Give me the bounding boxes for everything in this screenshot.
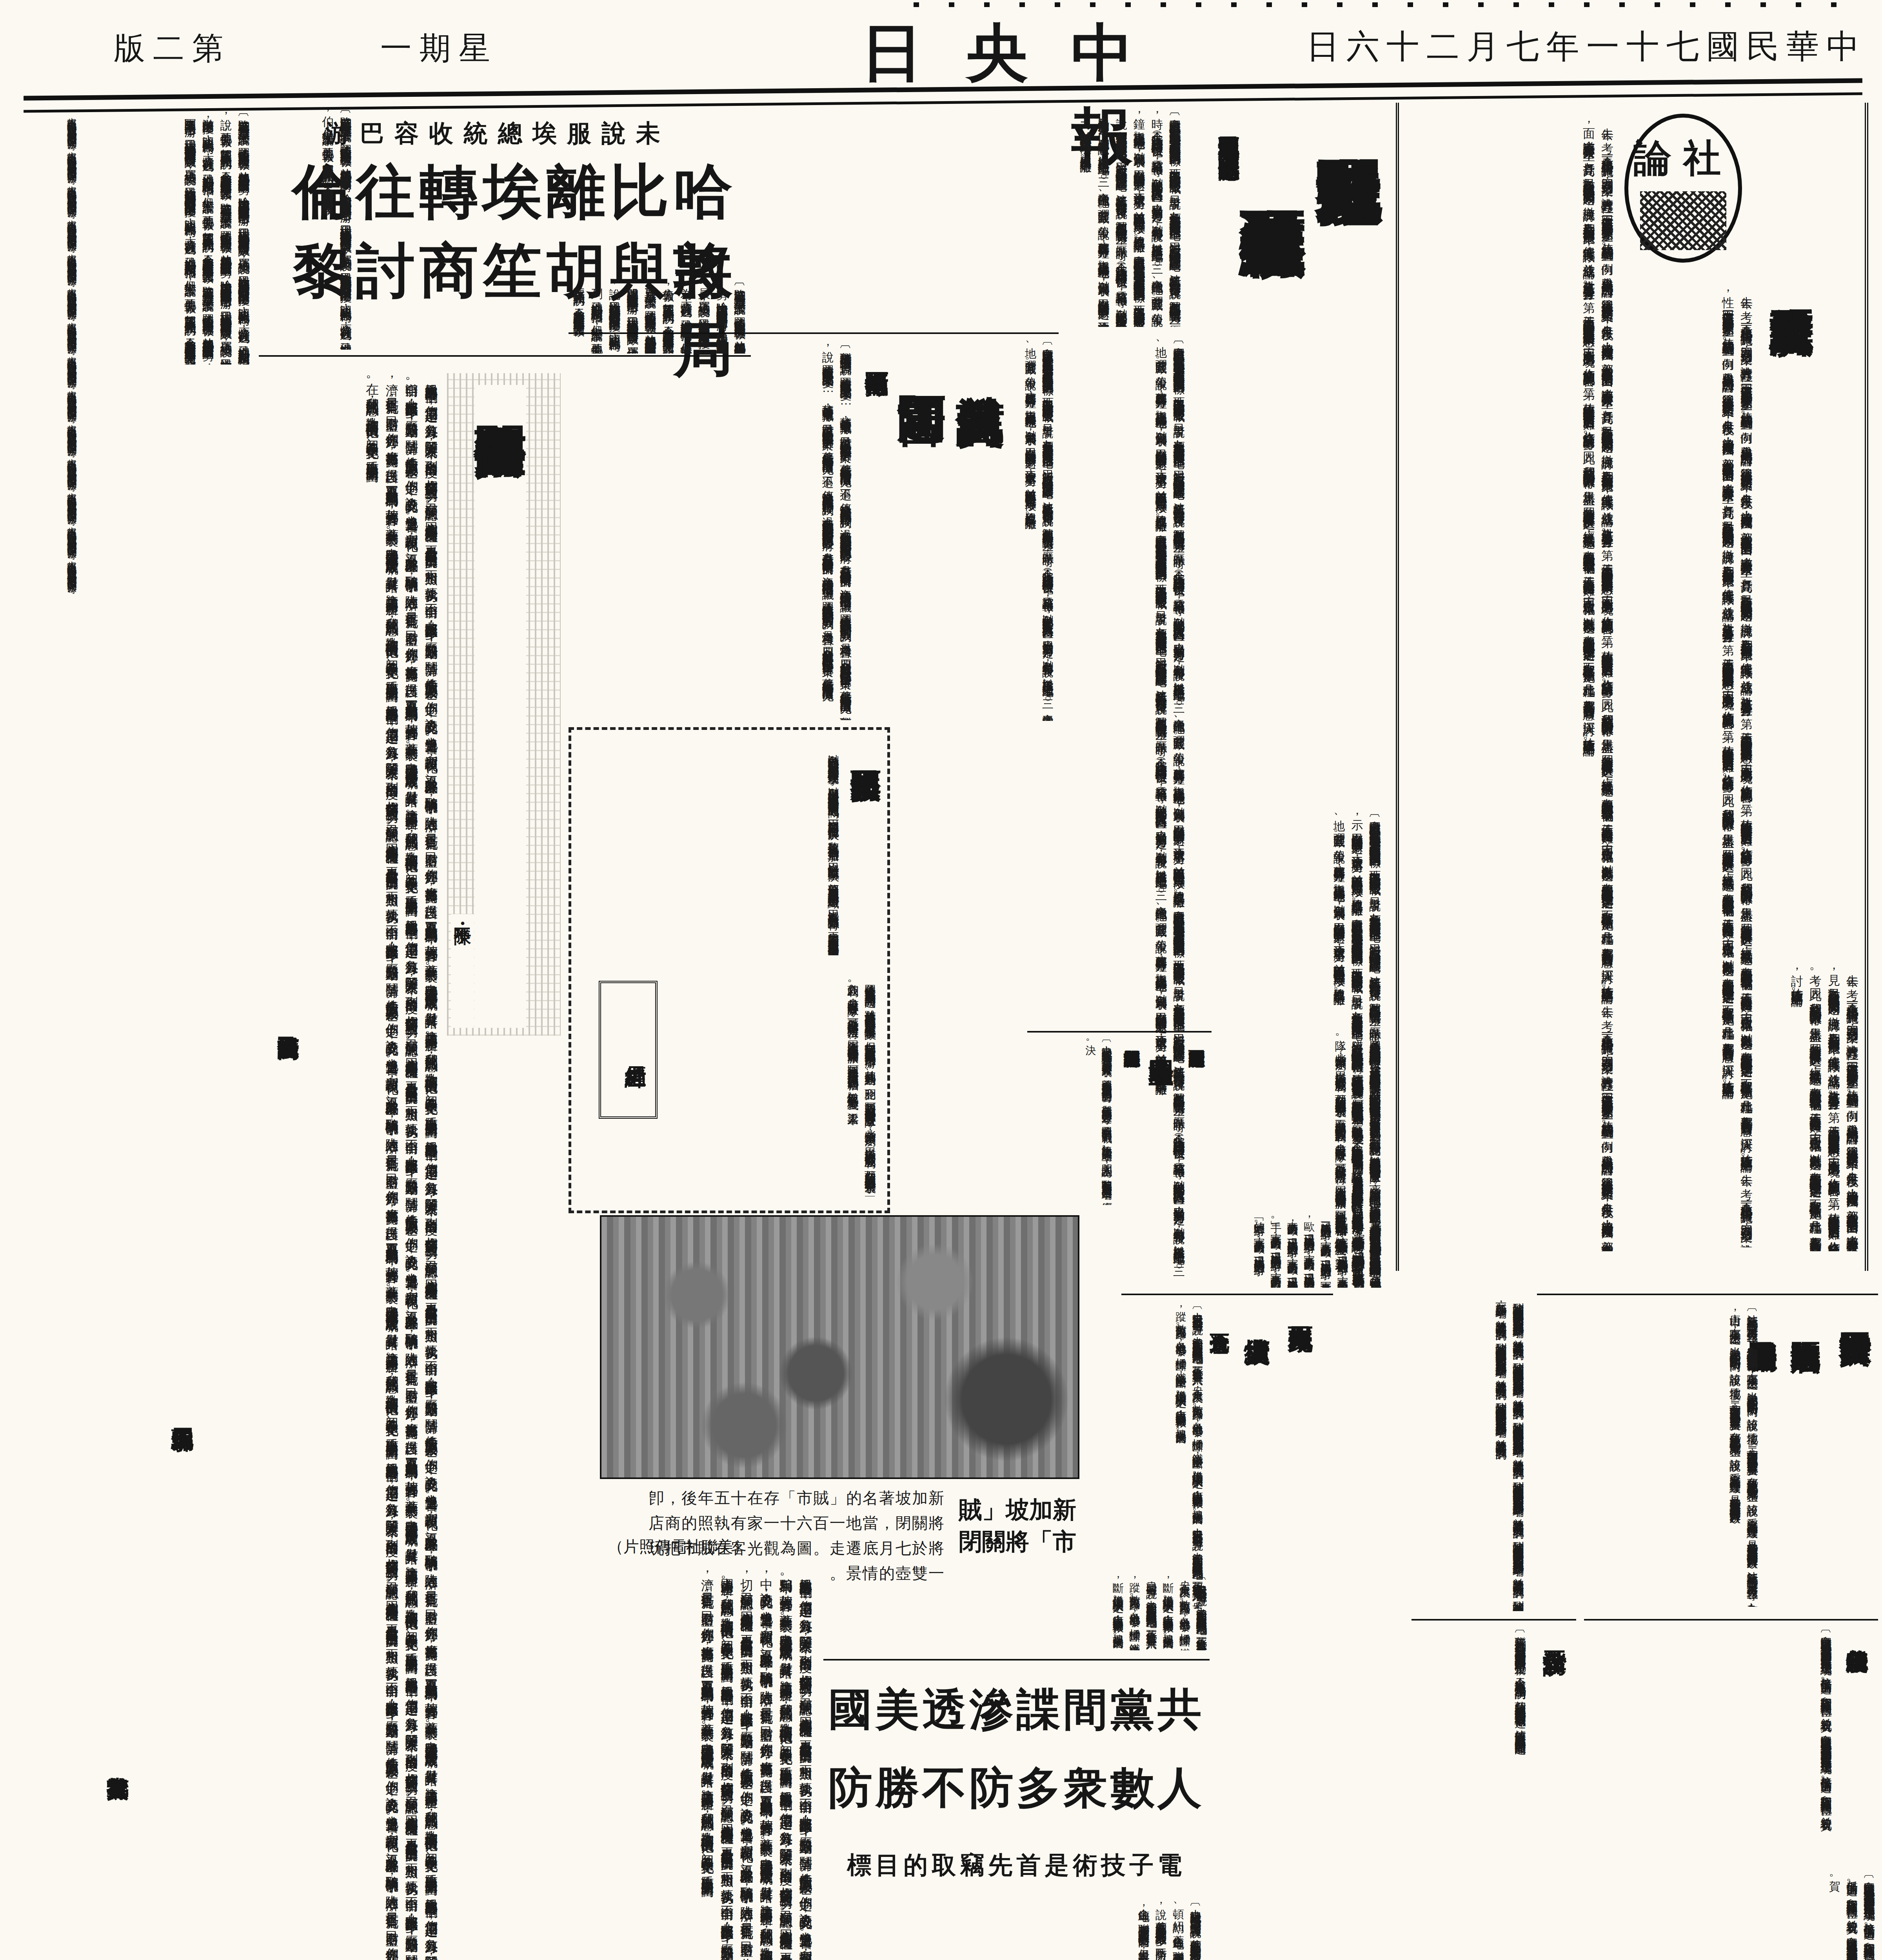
worldbox-body-bottom: 美國特使哈比目前正在埃及商討巴游問題，雖然埃及曾表示可以收容巴解「法塔」組織主要… [656, 975, 879, 1196]
europe-steel-columns: 該刊追述有關歐洲鋼鐵進口及歐洲公司參與建造西伯利亞瓦斯管線的爭端，並說美國的不滿… [1411, 1294, 1527, 1611]
beirut-headline-1: 以摧毀敍飛彈基地 [1315, 107, 1384, 805]
tangshan-headline-2: 唐山地震事隔六年 [1790, 1319, 1821, 1609]
singh-headline: 辛哈就任印度總統 [1842, 1632, 1872, 1852]
top-middle-wire-columns: 〔合衆國際社貝魯特二十五日電〕以色列噴射機二十五日連續第二天轟炸西貝魯特巴勒斯坦… [765, 109, 1184, 327]
news-photo [600, 1215, 1079, 1479]
left-top-wire-columns: 〔路透社開羅二十五日電〕埃及外交部人士說，美國特使哈比今天自開羅飛往倫敦，他將與… [84, 110, 253, 365]
saudi-body: 〔美聯社大馬士革廿五日電〕沙烏地阿拉伯王儲兼副總理及國民軍總司令阿布都拉親王，今… [1415, 1626, 1529, 1858]
afghan-headline-2: 阿富汗問題 [896, 358, 947, 632]
editorial-body-1: 去年 考。不意此一構想尚未付諸實施，卽因受到過分渲染，誇大其對立性，因而使若干原… [1409, 118, 1617, 1251]
open-letter-subhead-1: 提高警覺保護自己 [271, 1019, 307, 1247]
article-italy-pipeline: 強調瓦斯管合同須遵守 義國表明立場 推認為應會談解決問題 〔中央社記者鍾行憲羅馬… [1027, 1031, 1212, 1209]
masthead-registration-ticks [914, 2, 1862, 7]
world-affairs-box: 敍盼更換巴解頭目 以色列噴射機目前又開始對貝魯特的巴游目標作連續性攻擊，以色列與… [569, 727, 890, 1213]
photo-below-columns: 〔中央社東京二十五日共同電〕警方說，由於前天和昨天豪雨連續襲擊長崎縣和九州其他地… [823, 1574, 1210, 1650]
editorial-seal-pattern [1640, 191, 1726, 250]
editorial-body-2: 去年 考。不意此一構想尚未付諸實施，卽因受到過分渲染，誇大其對立性，因而使若干原… [1626, 287, 1756, 1247]
article-us-ussr-afghanistan: 美俄曾商討 阿富汗問題 俄仍不肯自阿撤軍 〔合衆國際社貝魯特二十五日電〕以色列噴… [569, 332, 1059, 726]
beirut-headline-2: 並繼續猛炸西貝魯特 [1239, 160, 1308, 811]
editorial-body-3: 去年 考。不意此一構想尚未付諸實施，卽因受到過分渲染，誇大其對立性，因而使若干原… [1764, 965, 1862, 1251]
editorial-title: 集思廣益研討經濟政策 [1768, 275, 1816, 942]
spy-headline-1: 共黨間諜滲透美國 [823, 1680, 1210, 1739]
tangshan-headline-1: 匪幹貪污侵吞救濟金 [1838, 1307, 1872, 1613]
saudi-headline: 沙王儲訪敍 [1539, 1632, 1570, 1852]
italy-kicker: 強調瓦斯管合同須遵守 [1186, 1037, 1208, 1206]
spy-headline-2: 人數衆多防不勝防 [823, 1759, 1210, 1818]
afghan-side-columns: 〔合衆國際社貝魯特二十五日電〕以色列噴射機二十五日連續第二天轟炸西貝魯特巴勒斯坦… [1008, 339, 1057, 721]
habib-body-left: 〔路透社開羅二十五日電〕埃及外交部人士說，美國特使哈比今天自開羅飛往倫敦，他將與… [261, 107, 355, 350]
open-letter-title: 致中共海外留學生的公開信 [474, 385, 526, 1028]
editorial-seal-label: 社論 [1628, 133, 1738, 184]
kyushu-headline-2: 災情繼續擴大 [1240, 1319, 1274, 1609]
open-letter-subhead-3: 莫把青春葬送共黨 [100, 1760, 136, 1960]
masthead-page-number: 第二版 [94, 27, 231, 70]
italy-subhead: 推認為應會談解決問題 [1121, 1037, 1143, 1206]
afghan-headline-1: 美俄曾商討 [955, 358, 1006, 632]
beirut-subheads: 以軍與巴解爆發激烈地面戰鬥 以切斷西貝電力供應十一小時 [1192, 121, 1241, 787]
photo-caption: 新加坡「賊市」將關閉 新加坡著名的「賊市」存在十五年後，卽將關閉，當地一百六十一… [600, 1486, 1076, 1570]
afghan-subhead: 俄仍不肯自阿撤軍 [861, 354, 892, 597]
worldbox-body-top: 以色列噴射機目前又開始對貝魯特的巴游目標作連續性攻擊，以色列與巴游的部隊也在貝魯… [621, 746, 842, 955]
article-communist-spies: 共黨間諜滲透美國 人數衆多防不勝防 電子技術是首先竊取的目標 〔中央社記者華盛頓… [823, 1659, 1210, 1960]
bottom-right-misc-columns: 〔合衆國際社新德里二十五日電〕錫克教領袖宰爾・辛哈今天宣誓就任印度第七任總統，接… [1411, 1872, 1878, 1960]
page-right-frame [1865, 103, 1868, 1271]
open-letter-body-2: 親愛的中共海外留學生們：你們萬里迢迢，負笈海外，離開了家人親友，來到自由的國度，… [455, 1568, 816, 1960]
habib-kicker: 未說服埃總統收容巴游 [318, 117, 670, 150]
article-kyushu-rain: 日本九州豪雨 災情繼續擴大 死亡逾百五十八 〔中央社東京二十五日共同電〕警方說，… [1121, 1294, 1333, 1615]
article-saudi-crown-prince: 沙王儲訪敍 〔美聯社大馬士革廿五日電〕沙烏地阿拉伯王儲兼副總理及國民軍總司令阿布… [1411, 1619, 1576, 1864]
singh-body: 〔合衆國際社新德里二十五日電〕錫克教領袖宰爾・辛哈今天宣誓就任印度第七任總統，接… [1588, 1626, 1835, 1858]
open-letter-subhead-2: 四個現代化大騙局 [165, 1411, 201, 1639]
tangshan-body: 〔法新社北平二十五日電〕中共「工人日報」今天報導，一九七六年七月遭到災難性大地震… [1542, 1305, 1761, 1607]
masthead-date: 中華民國七十一年七月二十六日 [1176, 24, 1866, 69]
editorial-box: 社論 集思廣益研討經濟政策 去年 考。不意此一構想尚未付諸實施，卽因受到過分渲染… [1396, 103, 1869, 1271]
kyushu-headline-3: 死亡逾百五十八 [1207, 1319, 1233, 1609]
photo-credit: （美聯社電傳照片） [600, 1536, 749, 1557]
open-letter-headline-panel: 致中共海外留學生的公開信 ・陳不平 [447, 373, 561, 1036]
italy-body: 〔中央社記者鍾行憲羅馬二十五日專電〕義大利政府發言人今天表示，義國參與興建西伯利… [1030, 1036, 1115, 1205]
europe-economy-columns: 軍事支持的西歐，現已成為美國的「經濟對手」。軍事支持的西歐，現已成為美國的「經濟… [1086, 1213, 1384, 1288]
editorial-seal: 社論 [1624, 114, 1742, 263]
article-habib-leaves-egypt: 未說服埃總統收容巴游 哈比離埃轉往倫敦 將與胡笙商討黎局 〔路透社開羅二十五日電… [259, 103, 753, 357]
spy-body: 〔中央社記者華盛頓二十五日專電〕美國反間諜官員說，蘇俄集團及中共派駐美國的間諜人… [828, 1900, 1204, 1960]
kyushu-body: 〔中央社東京二十五日共同電〕警方說，由於前天和昨天豪雨連續襲擊長崎縣和九州其他地… [1125, 1303, 1206, 1609]
kyushu-headline-1: 日本九州豪雨 [1283, 1307, 1317, 1609]
spy-subhead: 電子技術是首先竊取的目標 [823, 1849, 1210, 1882]
open-letter-body: 親愛的中共海外留學生們：你們萬里迢迢，負笈海外，離開了家人親友，來到自由的國度，… [71, 373, 441, 1960]
newspaper-page: 中華民國七十一年七月二十六日 中央日報 星期一 第二版 本報訊中央日報國內外航空… [0, 0, 1882, 1960]
masthead-weekday: 星期一 [372, 27, 498, 70]
afghan-body: 〔美聯社華盛頓二十五日電〕官員們說，美國和蘇俄對阿富汗的立場並未改變……華盛頓希… [574, 342, 855, 720]
worldbox-column-banner: 世局經緯 [599, 981, 658, 1119]
italy-headline: 義國表明立場 [1144, 1040, 1178, 1205]
article-tangshan-earthquake: 匪幹貪污侵吞救濟金 唐山地震事隔六年 牛棚居民仍住帳篷 〔法新社北平二十五日電〕… [1537, 1294, 1878, 1615]
open-letter-author: ・陳不平 [451, 914, 474, 1028]
photo-caption-title: 新加坡「賊市」將關閉 [947, 1494, 1076, 1558]
article-singh-president: 辛哈就任印度總統 〔合衆國際社新德里二十五日電〕錫克教領袖宰爾・辛哈今天宣誓就任… [1584, 1619, 1878, 1864]
